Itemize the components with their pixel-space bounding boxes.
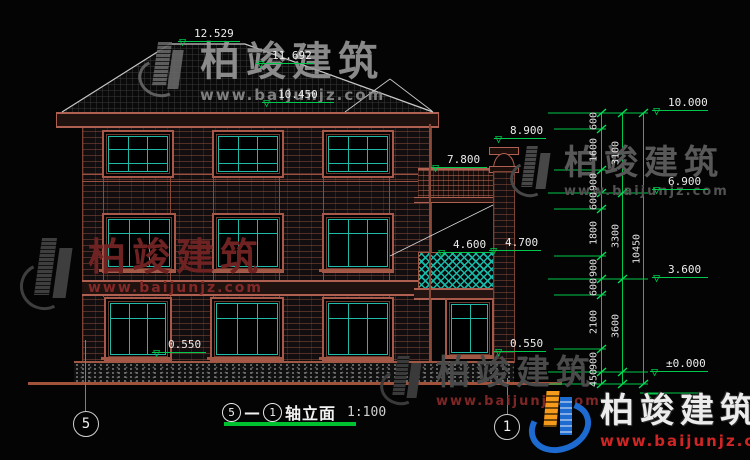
axis-bubble-5: 5 (73, 411, 99, 437)
window-3f-2 (212, 130, 284, 178)
level-value: 8.900 (510, 124, 543, 137)
title-label: 轴立面 (285, 400, 336, 424)
window-1f-3 (322, 297, 394, 361)
level-value: 4.700 (505, 236, 538, 249)
level-marker-ridge2: 11.692▽ (256, 50, 314, 64)
baijun-logo-icon (382, 356, 428, 404)
level-triangle-icon: ▽ (432, 162, 439, 174)
window-2f-3 (322, 213, 394, 273)
main-roof-eave-fascia (56, 112, 439, 128)
cad-elevation-drawing: 柏竣建筑 www.baijunjz.com 柏竣建筑 www.baijunjz.… (0, 0, 750, 460)
dim-subtotal: 3600 (611, 314, 622, 338)
dim-segment: 900 (589, 173, 600, 191)
dim-segment: 900 (589, 259, 600, 277)
dim-subtotal: 3100 (611, 141, 622, 165)
level-value: 0.550 (168, 338, 201, 351)
title-axis-separator: — (244, 403, 260, 422)
level-marker-balcony-outer: 4.700▽ (489, 237, 541, 251)
dim-segment: 600 (589, 112, 600, 130)
window-sill (101, 357, 171, 360)
window-3f-1 (102, 130, 174, 178)
title-axis-end: 1 (263, 403, 282, 422)
level-marker-eave: 10.450▽ (262, 89, 334, 103)
level-value: 12.529 (194, 27, 234, 40)
level-marker-right-f2: 3.600▽ (652, 264, 708, 278)
level-triangle-icon: ▽ (263, 97, 270, 109)
axis-bubble-1: 1 (494, 414, 520, 440)
watermark-brand: 柏竣建筑 (436, 356, 601, 390)
level-value: 6.900 (668, 175, 701, 188)
dim-segment: 900 (589, 352, 600, 370)
level-marker-sill-left: 0.550▽ (152, 339, 206, 353)
level-triangle-icon: ▽ (495, 346, 502, 358)
level-value: 10.000 (668, 96, 708, 109)
porch-roof-fascia (414, 197, 501, 203)
level-triangle-icon: ▽ (179, 36, 186, 48)
level-triangle-icon: ▽ (653, 184, 660, 196)
dim-total: 10450 (632, 234, 643, 264)
baijun-logo-icon (512, 146, 556, 196)
level-marker-balcony-inner: 4.600▽ (437, 239, 491, 253)
level-triangle-icon: ▽ (653, 105, 660, 117)
level-triangle-icon: ▽ (257, 58, 264, 70)
level-marker-right-zero: ±0.000▽ (650, 358, 708, 372)
level-value: 4.600 (453, 238, 486, 251)
baijun-logo-icon (140, 42, 192, 96)
dim-segment: 1800 (589, 221, 600, 245)
baijun-brand-logo: 柏竣建筑 www.baijunjz.com (528, 388, 750, 452)
level-value: 0.550 (510, 337, 543, 350)
level-value: 3.600 (668, 263, 701, 276)
level-marker-chimney: 8.900▽ (494, 125, 546, 139)
chimney-pier (493, 171, 515, 363)
level-marker-sill-right: 0.550▽ (494, 338, 546, 352)
level-triangle-icon: ▽ (495, 133, 502, 145)
baijun-emblem-icon (528, 388, 592, 452)
dim-segment: 450 (589, 369, 600, 387)
level-value: ±0.000 (666, 357, 706, 370)
level-marker-right-f3: 6.900▽ (652, 176, 708, 190)
roof-hip-line (390, 79, 432, 111)
level-marker-right-top: 10.000▽ (652, 97, 708, 111)
baijun-logo-icon (22, 238, 80, 308)
level-marker-roof-peak: 12.529▽ (178, 28, 240, 42)
level-triangle-icon: ▽ (651, 366, 658, 378)
watermark-brand: 柏竣建筑 (600, 394, 750, 428)
dim-segment: 2100 (589, 310, 600, 334)
watermark-left: 柏竣建筑 www.baijunjz.com (22, 238, 264, 308)
axis-number: 5 (82, 416, 90, 432)
dim-subtotal: 3300 (611, 224, 622, 248)
window-3f-3 (322, 130, 394, 178)
dim-segment: 600 (589, 278, 600, 296)
watermark-url: www.baijunjz.com (600, 432, 750, 450)
window-sill (207, 357, 283, 360)
dim-segment: 1600 (589, 138, 600, 162)
title-axis-start: 5 (222, 403, 241, 422)
watermark-url: www.baijunjz.com (88, 280, 264, 296)
window-sill (319, 269, 393, 272)
level-value: 10.450 (278, 88, 318, 101)
level-value: 11.692 (272, 49, 312, 62)
title-underline (224, 422, 356, 426)
level-triangle-icon: ▽ (438, 247, 445, 259)
window-1f-porch (445, 298, 494, 359)
watermark-brand: 柏竣建筑 (88, 238, 264, 276)
drawing-title: 5 — 1 轴立面 1:100 (222, 400, 386, 424)
level-triangle-icon: ▽ (653, 272, 660, 284)
level-triangle-icon: ▽ (490, 245, 497, 257)
level-value: 7.800 (447, 153, 480, 166)
dim-segment: 600 (589, 192, 600, 210)
title-scale: 1:100 (347, 405, 386, 420)
axis-number: 1 (503, 419, 511, 435)
level-marker-porch-roof: 7.800▽ (431, 154, 487, 168)
level-triangle-icon: ▽ (153, 347, 160, 359)
